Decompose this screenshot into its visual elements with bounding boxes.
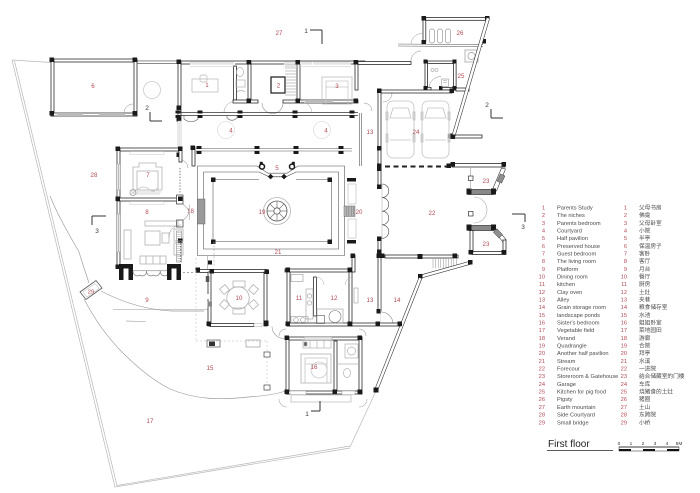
svg-text:水溪: 水溪 (639, 357, 651, 365)
svg-text:29: 29 (621, 420, 627, 426)
svg-text:7: 7 (542, 252, 545, 258)
svg-text:Verand: Verand (557, 336, 575, 342)
svg-text:11: 11 (296, 295, 303, 302)
svg-text:9: 9 (542, 267, 545, 273)
svg-text:拜亭: 拜亭 (639, 349, 651, 357)
svg-text:Alley: Alley (557, 298, 569, 304)
svg-text:kitchen: kitchen (557, 282, 575, 288)
svg-text:4: 4 (666, 441, 669, 447)
svg-text:3: 3 (654, 441, 657, 447)
svg-text:25: 25 (539, 390, 545, 396)
svg-text:Courtyard: Courtyard (557, 229, 582, 235)
svg-text:22: 22 (429, 210, 436, 217)
svg-text:2: 2 (485, 102, 489, 109)
svg-text:26: 26 (457, 30, 464, 37)
svg-text:14: 14 (621, 305, 627, 311)
svg-text:Grain storage room: Grain storage room (557, 305, 606, 311)
svg-text:土山: 土山 (639, 403, 651, 411)
svg-text:Clay oven: Clay oven (557, 290, 582, 296)
svg-text:29: 29 (539, 420, 545, 426)
svg-text:Platform: Platform (557, 267, 578, 273)
svg-text:15: 15 (207, 365, 214, 372)
svg-text:父母书房: 父母书房 (639, 204, 662, 212)
svg-text:7: 7 (146, 172, 150, 179)
svg-text:4: 4 (542, 229, 545, 235)
svg-text:20: 20 (539, 351, 545, 357)
svg-text:Vegetable field: Vegetable field (557, 328, 594, 334)
svg-text:厨房: 厨房 (639, 280, 651, 288)
svg-text:合院: 合院 (639, 342, 651, 350)
svg-text:8: 8 (624, 259, 627, 265)
svg-text:客厅: 客厅 (639, 257, 651, 265)
svg-text:12: 12 (331, 295, 338, 302)
svg-text:客卧: 客卧 (639, 250, 651, 258)
svg-text:1: 1 (304, 28, 308, 35)
svg-text:landscape ponds: landscape ponds (557, 313, 600, 319)
svg-text:猪圈: 猪圈 (639, 395, 651, 403)
svg-text:1: 1 (542, 206, 545, 212)
svg-text:7: 7 (624, 252, 627, 258)
svg-text:8: 8 (542, 259, 545, 265)
svg-text:18: 18 (539, 336, 545, 342)
svg-text:Dining room: Dining room (557, 275, 588, 281)
svg-text:19: 19 (259, 209, 266, 216)
svg-text:佛龛: 佛龛 (639, 211, 651, 219)
svg-text:3: 3 (542, 221, 545, 227)
svg-text:餐厅: 餐厅 (639, 273, 651, 281)
svg-text:小桥: 小桥 (639, 418, 651, 426)
svg-text:13: 13 (367, 129, 374, 136)
svg-text:10: 10 (236, 295, 243, 302)
svg-text:15: 15 (621, 313, 627, 319)
svg-text:1: 1 (630, 441, 633, 447)
svg-text:Parents Study: Parents Study (557, 206, 593, 212)
svg-text:Small bridge: Small bridge (557, 420, 589, 426)
svg-text:2: 2 (642, 441, 645, 447)
svg-text:20: 20 (621, 351, 627, 357)
svg-text:27: 27 (539, 405, 545, 411)
svg-text:23: 23 (483, 241, 490, 248)
svg-text:月台: 月台 (639, 265, 651, 273)
svg-text:15: 15 (539, 313, 545, 319)
svg-text:21: 21 (539, 359, 545, 365)
svg-text:2: 2 (624, 213, 627, 219)
svg-text:3: 3 (335, 83, 339, 90)
svg-text:9: 9 (624, 267, 627, 273)
svg-text:Parents bedroom: Parents bedroom (557, 221, 601, 227)
svg-text:28: 28 (621, 413, 627, 419)
svg-text:5M: 5M (676, 441, 683, 447)
svg-text:1: 1 (205, 82, 209, 89)
svg-text:22: 22 (539, 367, 545, 373)
svg-text:5: 5 (624, 236, 627, 242)
svg-text:半亭: 半亭 (639, 234, 651, 242)
svg-text:小院: 小院 (639, 227, 651, 235)
svg-text:Guest bedroom: Guest bedroom (557, 252, 596, 258)
svg-text:13: 13 (621, 298, 627, 304)
svg-text:The living room: The living room (557, 259, 596, 265)
svg-text:2: 2 (277, 83, 281, 90)
svg-text:27: 27 (276, 30, 283, 37)
svg-text:Side Courtyard: Side Courtyard (557, 413, 595, 419)
svg-text:4: 4 (324, 128, 328, 135)
svg-text:Half pavilion: Half pavilion (557, 236, 588, 242)
svg-text:6: 6 (624, 244, 627, 250)
svg-text:3: 3 (95, 228, 99, 235)
svg-text:The niches: The niches (557, 213, 585, 219)
svg-text:东跨院: 东跨院 (639, 411, 656, 419)
svg-text:24: 24 (539, 382, 545, 388)
svg-text:17: 17 (539, 328, 545, 334)
svg-text:Forecour: Forecour (557, 367, 580, 373)
svg-text:20: 20 (356, 209, 363, 216)
svg-text:10: 10 (539, 275, 545, 281)
svg-text:13: 13 (539, 298, 545, 304)
svg-text:Another half pavilion: Another half pavilion (557, 351, 609, 357)
svg-text:19: 19 (539, 344, 545, 350)
svg-text:12: 12 (621, 290, 627, 296)
svg-text:28: 28 (91, 172, 98, 179)
svg-text:游廊: 游廊 (639, 334, 651, 342)
svg-text:结合储藏室的门楼: 结合储藏室的门楼 (639, 372, 685, 380)
svg-text:23: 23 (539, 374, 545, 380)
svg-text:Quadrangle: Quadrangle (557, 344, 587, 350)
svg-text:1: 1 (624, 206, 627, 212)
svg-text:粮食储存室: 粮食储存室 (639, 303, 668, 311)
svg-text:5: 5 (275, 165, 279, 172)
svg-text:16: 16 (311, 364, 318, 371)
svg-text:车库: 车库 (639, 380, 651, 388)
svg-text:29: 29 (88, 290, 94, 296)
svg-text:烧猪食的土灶: 烧猪食的土灶 (639, 388, 673, 396)
svg-text:4: 4 (229, 128, 233, 135)
svg-text:21: 21 (275, 249, 282, 256)
svg-text:24: 24 (621, 382, 627, 388)
svg-text:16: 16 (621, 321, 627, 327)
svg-text:保温房子: 保温房子 (639, 242, 662, 250)
svg-text:26: 26 (539, 397, 545, 403)
svg-text:22: 22 (621, 367, 627, 373)
svg-text:23: 23 (621, 374, 627, 380)
svg-text:2: 2 (145, 105, 149, 112)
svg-text:25: 25 (621, 390, 627, 396)
svg-text:14: 14 (539, 305, 545, 311)
svg-text:3: 3 (624, 221, 627, 227)
svg-text:18: 18 (621, 336, 627, 342)
svg-text:11: 11 (539, 282, 545, 288)
svg-text:Stream: Stream (557, 359, 576, 365)
svg-text:11: 11 (621, 282, 627, 288)
svg-text:24: 24 (413, 129, 420, 136)
svg-text:1: 1 (305, 411, 309, 418)
svg-text:14: 14 (394, 297, 401, 304)
svg-text:6: 6 (542, 244, 545, 250)
svg-text:水池: 水池 (639, 311, 651, 319)
svg-text:夹巷: 夹巷 (639, 296, 651, 304)
svg-text:Pigsty: Pigsty (557, 397, 573, 403)
svg-text:25: 25 (458, 73, 465, 80)
svg-text:Kitchen for pig food: Kitchen for pig food (557, 390, 606, 396)
svg-text:0: 0 (618, 441, 621, 447)
svg-text:27: 27 (621, 405, 627, 411)
svg-text:16: 16 (539, 321, 545, 327)
svg-text:28: 28 (539, 413, 545, 419)
svg-text:父母卧室: 父母卧室 (639, 219, 662, 227)
svg-text:26: 26 (621, 397, 627, 403)
svg-text:19: 19 (621, 344, 627, 350)
svg-text:3: 3 (521, 224, 525, 231)
svg-text:姐姐卧室: 姐姐卧室 (639, 319, 662, 327)
svg-text:6: 6 (91, 83, 95, 90)
svg-text:First floor: First floor (548, 439, 590, 450)
svg-text:5: 5 (542, 236, 545, 242)
svg-text:17: 17 (621, 328, 627, 334)
svg-text:9: 9 (145, 297, 149, 304)
svg-text:2: 2 (542, 213, 545, 219)
svg-text:13: 13 (367, 297, 374, 304)
svg-text:Earth mountain: Earth mountain (557, 405, 596, 411)
svg-text:Sister's bedroom: Sister's bedroom (557, 321, 600, 327)
svg-text:21: 21 (621, 359, 627, 365)
svg-text:一进院: 一进院 (639, 365, 656, 373)
svg-text:4: 4 (624, 229, 627, 235)
svg-text:12: 12 (539, 290, 545, 296)
svg-text:8: 8 (145, 209, 149, 216)
svg-text:土灶: 土灶 (639, 288, 651, 296)
svg-text:Preserved house: Preserved house (557, 244, 600, 250)
svg-text:Storeroom & Gatehouse: Storeroom & Gatehouse (557, 374, 618, 380)
svg-text:10: 10 (621, 275, 627, 281)
svg-text:Garage: Garage (557, 382, 576, 388)
svg-text:17: 17 (147, 418, 154, 425)
svg-text:23: 23 (483, 178, 490, 185)
svg-text:菜地园田: 菜地园田 (639, 326, 662, 334)
